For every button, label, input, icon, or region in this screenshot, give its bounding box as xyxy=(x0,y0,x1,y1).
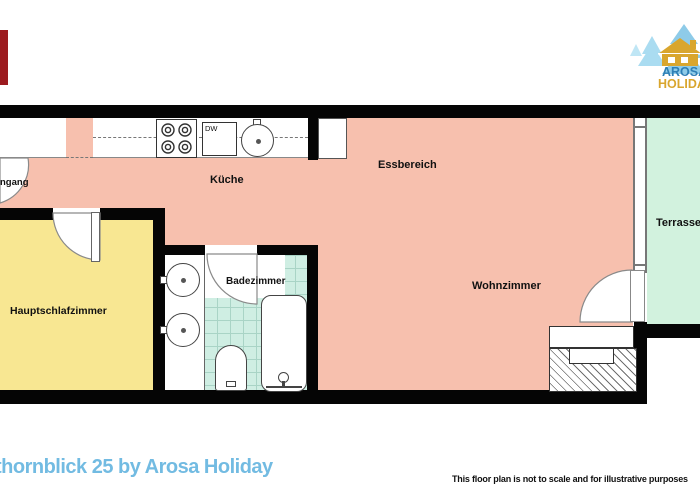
toilet-flush xyxy=(226,381,236,387)
stove xyxy=(156,119,197,158)
wall-bottom xyxy=(0,390,647,404)
kitchen-wall-stub xyxy=(308,105,318,160)
terrace-door-leaf xyxy=(630,270,645,322)
bathtub xyxy=(261,295,307,392)
label-entrance: ngang xyxy=(0,177,29,188)
fireplace-opening xyxy=(569,348,614,364)
label-bathroom: Badezimmer xyxy=(226,276,285,287)
terrace-window xyxy=(633,118,647,273)
label-bedroom: Hauptschlafzimmer xyxy=(10,305,107,317)
logo-text-line2: HOLIDAY xyxy=(658,77,700,91)
footer-title: thornblick 25 by Arosa Holiday xyxy=(0,456,273,479)
bedroom-door-leaf xyxy=(91,212,100,262)
kitchen-sink xyxy=(241,124,274,157)
bathroom-door-gap xyxy=(205,245,257,255)
label-living: Wohnzimmer xyxy=(472,280,541,292)
bathtub-faucet-stem xyxy=(282,381,285,387)
arosa-holiday-logo: AROSA HOLIDAY xyxy=(612,24,700,104)
wall-top xyxy=(0,105,700,118)
bath-sink-1-drain xyxy=(181,278,186,283)
fireplace-hearth xyxy=(549,326,634,348)
house-icon xyxy=(658,38,700,66)
footer-disclaimer: This floor plan is not to scale and for … xyxy=(452,474,700,484)
toilet xyxy=(215,345,247,391)
terrace-window-tick-bottom xyxy=(633,264,647,266)
counter-opening xyxy=(66,118,93,158)
label-kitchen: Küche xyxy=(210,174,244,186)
kitchen-sink-drain xyxy=(256,139,261,144)
bath-sink-2 xyxy=(166,313,200,347)
kitchen-cabinet xyxy=(318,118,347,159)
counter-centerline xyxy=(93,137,308,138)
label-terrace: Terrasse xyxy=(656,217,700,229)
bath-sink-1 xyxy=(166,263,200,297)
stove-burners-icon xyxy=(157,120,196,157)
bathroom-wall-right xyxy=(307,245,318,390)
label-dining: Essbereich xyxy=(378,159,437,171)
bath-sink-2-drain xyxy=(181,328,186,333)
dishwasher: DW xyxy=(202,122,237,156)
accent-bar xyxy=(0,30,8,85)
terrace-window-tick-top xyxy=(633,126,647,128)
floor-plan-page: DW xyxy=(0,0,700,500)
dishwasher-label: DW xyxy=(205,124,218,133)
bedroom-wall-right xyxy=(153,208,165,390)
